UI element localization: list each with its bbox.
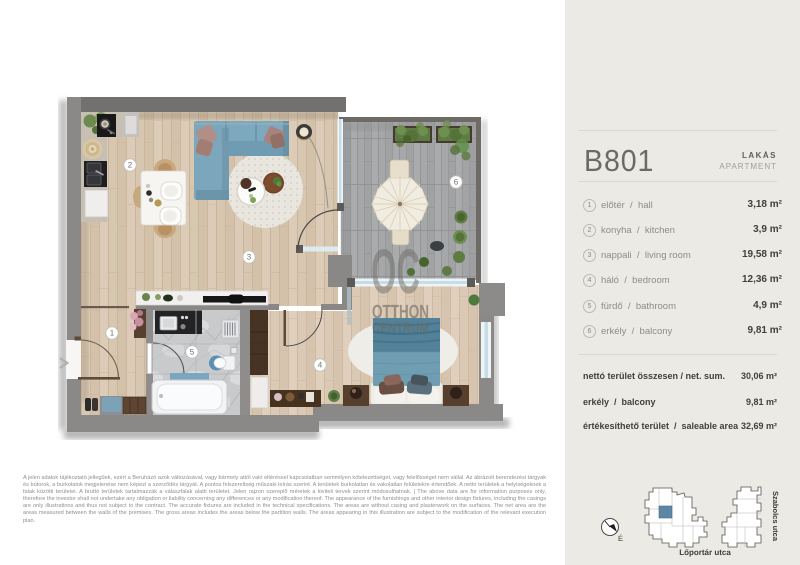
svg-text:Lőportár utca: Lőportár utca (679, 548, 731, 557)
svg-text:5: 5 (190, 348, 195, 357)
svg-text:6: 6 (454, 178, 459, 187)
svg-text:OC: OC (371, 237, 420, 307)
svg-text:Szabolcs utca: Szabolcs utca (771, 491, 780, 542)
svg-text:2: 2 (128, 161, 133, 170)
svg-text:CENTRUM: CENTRUM (372, 321, 429, 337)
svg-text:3: 3 (247, 253, 252, 262)
svg-text:1: 1 (110, 329, 115, 338)
svg-text:É: É (618, 534, 623, 543)
svg-text:4: 4 (318, 361, 323, 370)
